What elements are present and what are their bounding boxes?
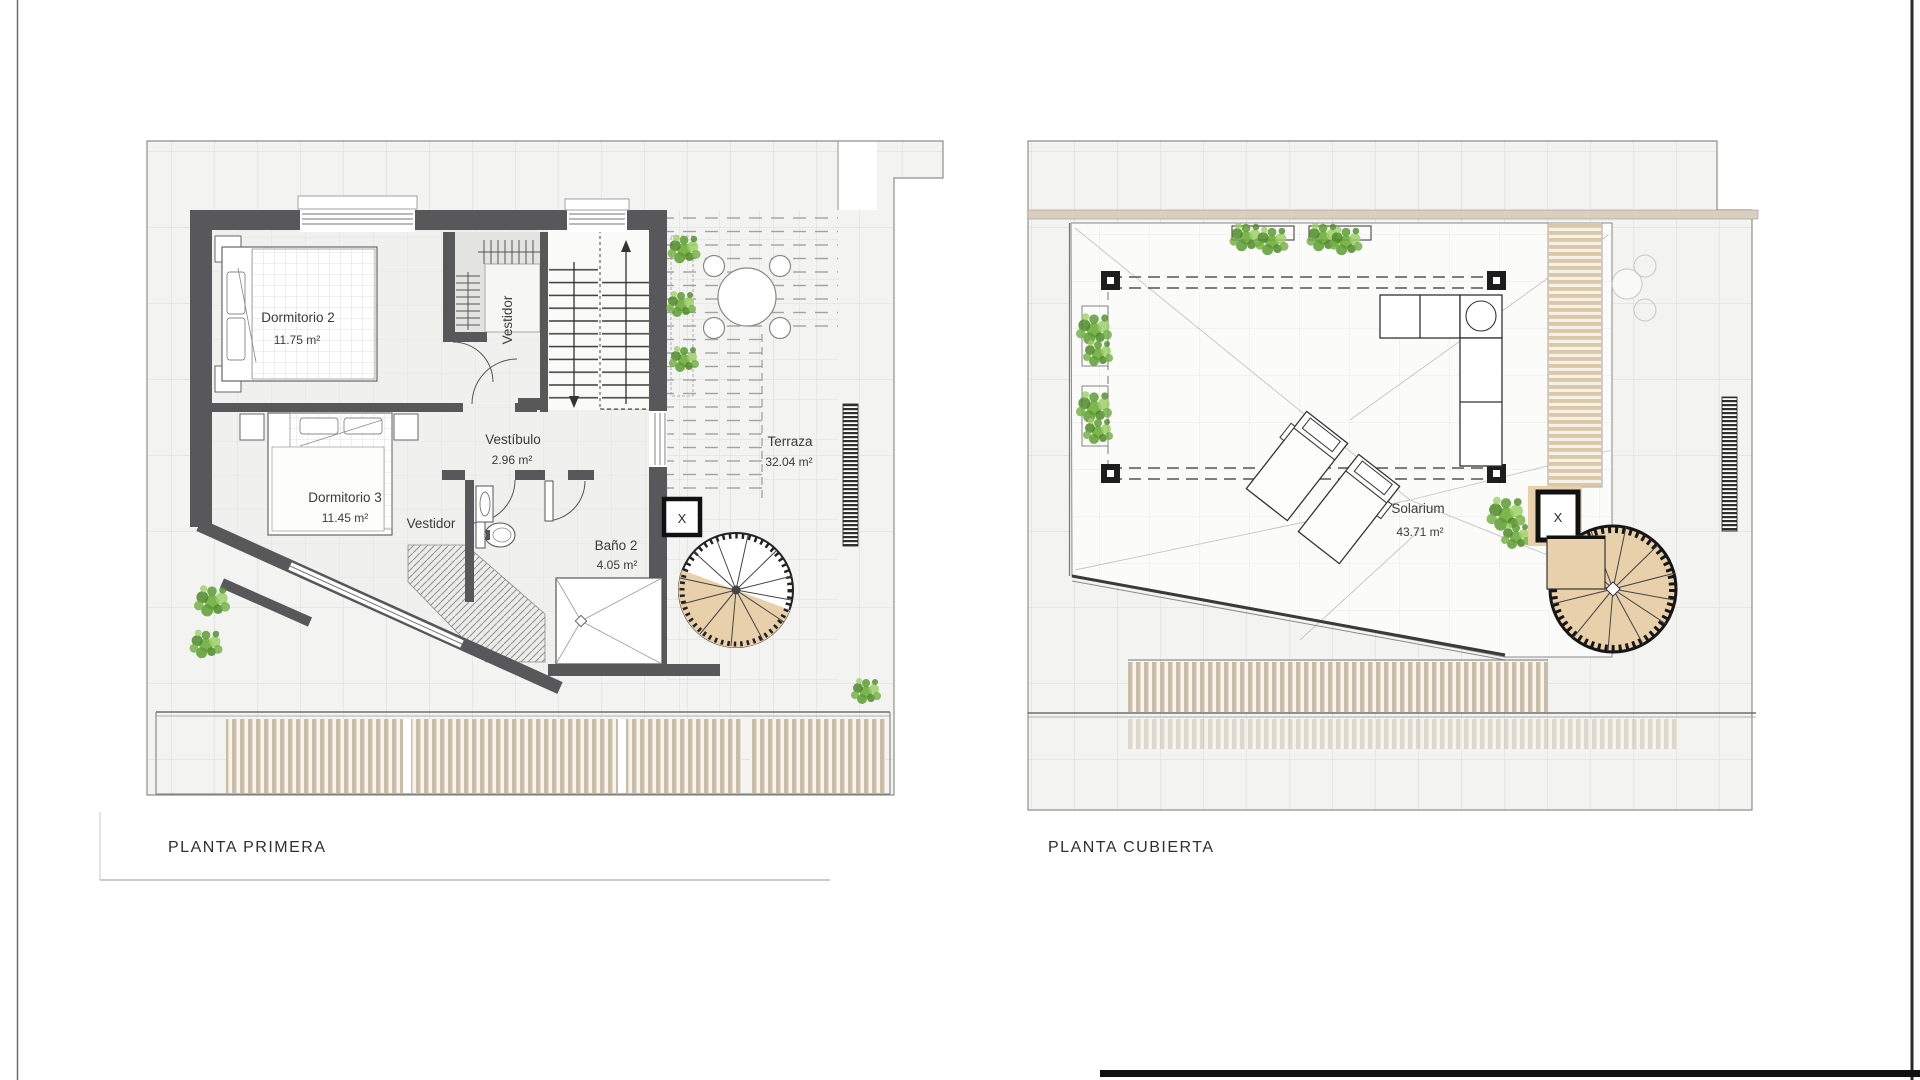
label-solarium: Solarium bbox=[1391, 501, 1444, 516]
elevator: X bbox=[664, 499, 700, 535]
slat-strip bbox=[1548, 223, 1602, 487]
label-bano2: Baño 2 bbox=[595, 538, 638, 553]
label-dormitorio2: Dormitorio 2 bbox=[261, 310, 335, 325]
label-terraza: Terraza bbox=[767, 434, 813, 449]
label-dormitorio3: Dormitorio 3 bbox=[308, 490, 382, 505]
plan-title-cubierta: PLANTA CUBIERTA bbox=[1048, 839, 1215, 856]
area-dormitorio2: 11.75 m² bbox=[274, 333, 320, 347]
label-vestidor-sur: Vestidor bbox=[407, 516, 456, 531]
spiral-staircase-right bbox=[1547, 526, 1676, 652]
elevator-right-label: X bbox=[1554, 510, 1563, 525]
plan-planta-cubierta: X bbox=[1028, 141, 1758, 856]
area-dormitorio3: 11.45 m² bbox=[322, 511, 368, 525]
louver-strip-right bbox=[1722, 397, 1737, 531]
elevator-label: X bbox=[678, 511, 687, 526]
sink bbox=[476, 486, 493, 522]
label-vestidor-norte: Vestidor bbox=[500, 295, 515, 344]
area-vestibulo: 2.96 m² bbox=[492, 453, 533, 467]
floorplan-sheet: X bbox=[0, 0, 1920, 1080]
area-bano2: 4.05 m² bbox=[597, 558, 638, 572]
shower bbox=[556, 578, 662, 664]
louver-strip bbox=[843, 404, 858, 546]
toilet bbox=[476, 522, 515, 548]
area-terraza: 32.04 m² bbox=[765, 455, 812, 469]
floorplan-drawing: X bbox=[0, 0, 1920, 1080]
staircase bbox=[548, 213, 654, 410]
wardrobe-north bbox=[455, 232, 540, 332]
plan-title-primera: PLANTA PRIMERA bbox=[168, 839, 327, 856]
plan-planta-primera: X bbox=[100, 141, 943, 880]
label-vestibulo: Vestíbulo bbox=[485, 432, 541, 447]
spiral-staircase bbox=[678, 533, 793, 648]
area-solarium: 43.71 m² bbox=[1396, 525, 1443, 539]
